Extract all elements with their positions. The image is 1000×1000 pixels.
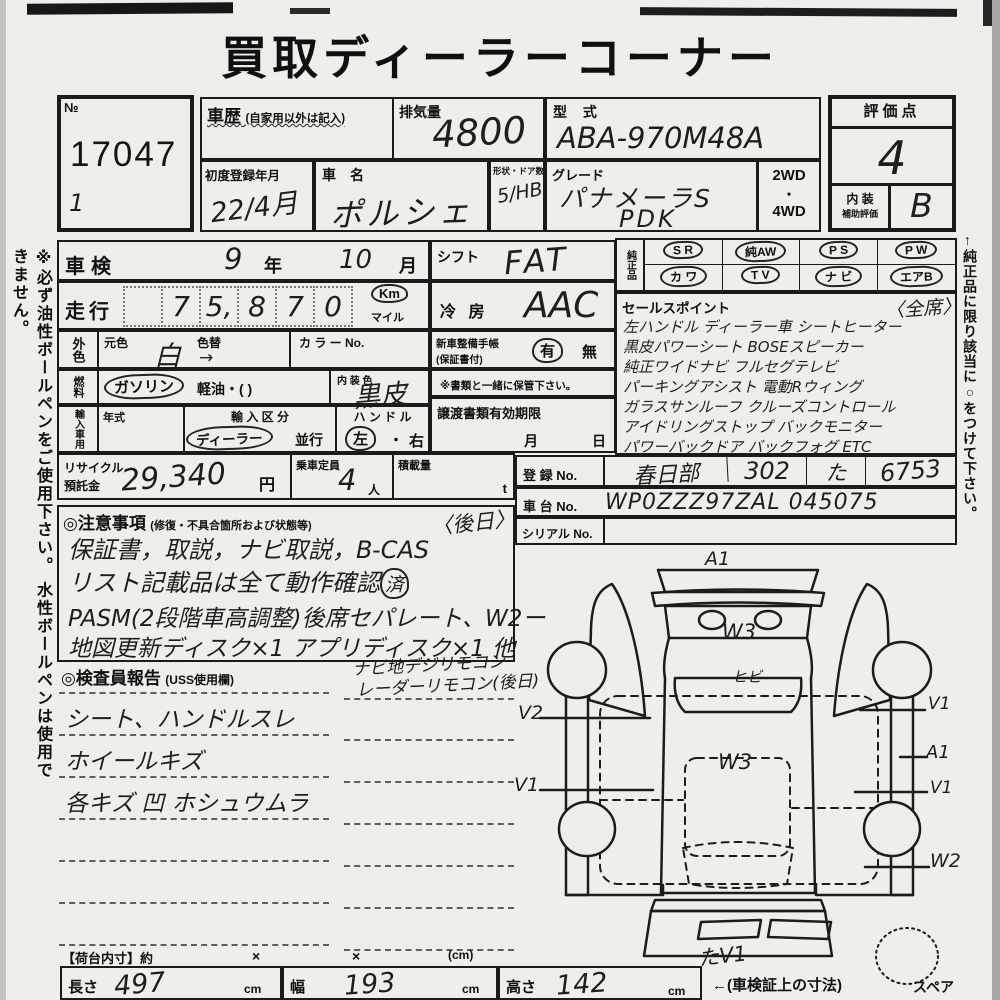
width-label: 幅 <box>290 976 305 997</box>
chassis-number-label: 車 台 No. <box>523 496 577 515</box>
recycle-label-2: 預託金 <box>64 477 100 494</box>
lot-number-box: № 17047 1 <box>57 95 194 232</box>
dimensions-source-note: ←(車検証上の寸法) <box>712 974 842 995</box>
bed-dimensions-label: 【荷台内寸】約 <box>62 948 153 967</box>
handle-left: 左 <box>345 426 376 451</box>
load-unit: t <box>503 481 507 496</box>
mileage-row: 走行 7 5, 8 7 0 Km マイル <box>57 281 430 330</box>
drive-2wd: 2WD <box>759 167 819 184</box>
damage-label-left-v2: V2 <box>518 702 543 724</box>
cautions-line-2-circled-done: 済 <box>380 568 409 599</box>
genuine-part-tv: T V <box>741 265 780 284</box>
body-side-right <box>811 678 815 893</box>
exterior-color-label: 外色 <box>69 332 88 368</box>
capacity-label: 乗車定員 <box>296 457 340 473</box>
ruled-line <box>344 949 514 951</box>
inspection-month-unit: 月 <box>399 252 417 278</box>
scan-artifact <box>640 7 957 17</box>
sales-points-lines: 左ハンドル ディーラー車 シートヒーター 黒皮パワーシート BOSEスピーカー … <box>623 317 957 457</box>
handle-cell: ハ ン ド ル 左 ・ 右 <box>337 407 428 451</box>
sales-point-line: 純正ワイドナビ フルセグテレビ <box>623 357 957 377</box>
rear-reflector-left <box>698 920 761 939</box>
cautions-line-2-text: リスト記載品は全て動作確認済 <box>68 563 409 599</box>
right-margin-note: ←純正品に限り該当に○をつけて下さい。 <box>960 234 980 554</box>
interior-grade-row: 内 装 補助評価 B <box>832 183 952 228</box>
displacement-value: 4800 <box>431 109 527 157</box>
recycle-fee-cell: リサイクル 預託金 29,340 円 <box>59 455 292 498</box>
damage-label-front-a1: A1 <box>705 548 730 570</box>
grade-value-line2: PDK <box>619 205 677 233</box>
exterior-color-row: 外色 元色 白 色替 → カ ラ ー No. <box>57 330 430 369</box>
model-code-box: 型 式 ABA-970M48A <box>545 97 821 160</box>
fuel-diesel: 軽油・( ) <box>197 379 252 399</box>
color-no-cell: カ ラ ー No. <box>291 332 428 367</box>
documents-note-box: ※書類と一緒に保管下さい。 <box>430 369 616 397</box>
grade-score-value: 4 <box>832 131 952 185</box>
scan-artifact <box>290 8 330 14</box>
base-color-label: 元色 <box>104 334 128 351</box>
recycle-value: 29,340 <box>120 456 227 498</box>
grade-score-box: 評価点 4 内 装 補助評価 B <box>828 95 956 232</box>
length-box: 長さ 497 cm <box>60 966 282 1000</box>
load-cell: 積載量 t <box>394 455 513 498</box>
width-value: 193 <box>343 967 397 1000</box>
cautions-line-3: PASM(2段階車高調整)後席セパレート、W2ー <box>62 599 510 633</box>
body-door-label: 形状・ドア数 <box>493 165 544 177</box>
registration-number-row: 登 録 No. 春日部 302 た 6753 <box>515 455 957 487</box>
fuel-gasoline: ガソリン <box>104 373 185 401</box>
displacement-box: 排気量 4800 <box>392 97 545 160</box>
base-color-value: 白 <box>154 334 181 373</box>
first-registration-label: 初度登録年月 <box>205 165 280 184</box>
aircon-value: AAC <box>524 285 598 326</box>
inspector-row-3-text: 各キズ 凹 ホシュウムラ <box>65 784 308 818</box>
genuine-part-cell: 純AW <box>723 240 801 265</box>
inspector-row-3: 各キズ 凹 ホシュウムラ <box>57 778 515 820</box>
registration-digits: 6753 <box>865 453 956 489</box>
inspector-report-area: ◎検査員報告 (USS使用欄) シート、ハンドルスレ ホイールキズ 各キズ 凹 … <box>57 662 515 946</box>
damage-label-right-v1-mid: V1 <box>930 778 952 798</box>
sales-point-line: 左ハンドル ディーラー車 シートヒーター <box>623 317 957 337</box>
genuine-parts-box: 純正品 S R 純AW P S P W カ ワ T V ナ ビ エアB <box>615 238 957 292</box>
sales-point-line: アイドリングストップ バックモニター <box>623 417 957 437</box>
right-rear-wheel <box>864 802 920 856</box>
sales-points-label: セールスポイント <box>622 297 730 317</box>
damage-label-right-w2: W2 <box>930 850 961 872</box>
first-registration-value: 22/4月 <box>208 181 300 230</box>
import-label: 輸入車用 <box>71 407 86 451</box>
damage-label-right-a1: A1 <box>926 742 950 763</box>
page-title: 買取ディーラーコーナー <box>200 22 800 88</box>
spare-tire-outline <box>876 928 938 984</box>
history-label: 車歴 (自家用以外は記入) <box>207 102 345 127</box>
recycle-label-1: リサイクル <box>64 459 123 476</box>
inspector-row-4 <box>57 820 515 862</box>
genuine-part-cell: S R <box>645 240 723 265</box>
service-book-label-2: (保証書付) <box>436 351 483 366</box>
mileage-digit-cells: 7 5, 8 7 0 <box>123 286 353 327</box>
bed-dim-times-1: × <box>252 948 260 964</box>
genuine-part-aw: 純AW <box>735 240 787 263</box>
inspector-row-5 <box>57 862 515 904</box>
import-class-label: 輸 入 区 分 <box>185 408 335 425</box>
registration-number-label: 登 録 No. <box>517 457 605 485</box>
registration-class: 302 <box>728 457 807 485</box>
mileage-digit: 8 <box>237 286 277 327</box>
model-year-label: 年式 <box>103 409 125 425</box>
inspector-row-6 <box>57 904 515 946</box>
interior-grade-label: 内 装 補助評価 <box>832 186 891 228</box>
load-label: 積載量 <box>398 457 431 473</box>
mileage-digit: 5, <box>199 286 239 327</box>
cautions-line-1-text: 保証書，取説，ナビ取説，B-CAS <box>68 530 429 565</box>
rear-window <box>683 842 793 888</box>
rear-bumper-lip <box>651 900 825 911</box>
drive-dot: ・ <box>759 184 819 203</box>
fuel-row: 燃料 ガソリン 軽油・( ) 内 装 色 黒皮 <box>57 369 430 405</box>
height-box: 高さ 142 cm <box>498 966 702 1000</box>
service-book-label-1: 新車整備手帳 <box>436 336 499 351</box>
height-unit: cm <box>668 984 685 998</box>
inspector-report-label: ◎検査員報告 <box>61 669 161 688</box>
transfer-docs-box: 譲渡書類有効期限 月 日 <box>430 397 616 453</box>
serial-number-label: シリアル No. <box>522 525 593 542</box>
aircon-label: 冷 房 <box>440 298 488 322</box>
width-box: 幅 193 cm <box>282 966 498 1000</box>
length-label: 長さ <box>68 976 98 997</box>
damage-label-left-v1: V1 <box>514 774 539 796</box>
inspector-row-2-text: ホイールキズ <box>65 742 203 776</box>
mileage-digit: 7 <box>275 286 315 327</box>
registration-area: 春日部 <box>604 454 728 488</box>
first-registration-box: 初度登録年月 22/4月 <box>200 160 314 232</box>
shift-label: シフト <box>437 247 479 267</box>
grade-box: グレード パナメーラS PDK <box>545 160 758 232</box>
lot-number-value: 17047 <box>70 135 177 175</box>
inspection-label: 車検 <box>65 250 117 279</box>
model-year-cell: 年式 <box>99 407 185 451</box>
height-value: 142 <box>555 967 609 1000</box>
mileage-digit: 0 <box>313 286 353 327</box>
mileage-digit <box>123 286 163 327</box>
inspector-row-2: ホイールキズ <box>57 736 515 778</box>
transfer-docs-label: 譲渡書類有効期限 <box>437 403 541 422</box>
fuel-type-cell: ガソリン 軽油・( ) <box>99 371 331 403</box>
scan-edge <box>992 0 1000 1000</box>
handle-label: ハ ン ド ル <box>337 408 428 425</box>
model-code-label: 型 式 <box>553 102 603 122</box>
sales-point-line: ガラスサンルーフ クルーズコントロール <box>623 397 957 417</box>
height-label: 高さ <box>506 976 536 997</box>
drive-type-box: 2WD ・ 4WD <box>757 160 821 232</box>
left-sill-panel <box>566 690 588 895</box>
right-front-wheel <box>873 642 931 698</box>
left-front-wheel <box>548 642 606 698</box>
transfer-docs-month: 月 <box>524 431 538 451</box>
inspector-report-sub: (USS使用欄) <box>165 673 234 687</box>
registration-kana: た <box>807 457 866 485</box>
left-margin-note: ※必ず油性ボールペンをご使用下さい。 水性ボールペンは使用できません。 <box>6 248 54 793</box>
cautions-line-2: リスト記載品は全て動作確認済 <box>62 565 510 599</box>
damage-label-windshield-crack: ヒビ <box>732 666 762 687</box>
body-side-left <box>661 678 665 893</box>
import-class-dealer: ディーラー <box>186 424 273 451</box>
import-class-cell: 輸 入 区 分 ディーラー 並行 <box>185 407 337 451</box>
recycle-row: リサイクル 預託金 29,340 円 乗車定員 4 人 積載量 t <box>57 453 515 500</box>
width-unit: cm <box>462 982 479 996</box>
model-code-value: ABA-970M48A <box>557 121 764 155</box>
cautions-box: ◎注意事項 (修復・不具合箇所および状態等) 〈後日〉 保証書，取説，ナビ取説，… <box>57 505 515 662</box>
cautions-line-3-text: PASM(2段階車高調整)後席セパレート、W2ー <box>68 599 545 633</box>
shift-value: FAT <box>503 240 570 282</box>
rear-reflector-right <box>768 920 831 939</box>
handle-right: 右 <box>409 430 424 451</box>
genuine-part-cell: ナ ビ <box>800 265 878 290</box>
capacity-unit: 人 <box>368 481 380 498</box>
genuine-part-navi: ナ ビ <box>814 265 862 288</box>
genuine-part-pw: P W <box>895 240 938 259</box>
genuine-part-airbag: エアB <box>890 265 943 288</box>
body-door-value: 5/HB <box>495 178 544 208</box>
cautions-line-1: 保証書，取説，ナビ取説，B-CAS <box>62 531 510 565</box>
scan-artifact <box>27 2 233 14</box>
mileage-digit: 7 <box>161 286 201 327</box>
car-name-value: ポルシェ <box>329 186 475 237</box>
inspector-report-header: ◎検査員報告 (USS使用欄) <box>61 664 234 689</box>
damage-label-roof-w3: W3 <box>718 750 752 774</box>
bed-dim-cm-note: (cm) <box>448 948 473 962</box>
fuel-label: 燃料 <box>70 371 86 403</box>
base-color-cell: 元色 白 色替 → <box>99 332 291 367</box>
service-book-box: 新車整備手帳 (保証書付) 有 無 <box>430 330 616 369</box>
damage-label-hood-w3: W3 <box>722 620 756 644</box>
mileage-unit-km: Km <box>371 284 408 303</box>
inspection-year-unit: 年 <box>264 252 282 278</box>
left-rear-panel-line <box>566 885 663 895</box>
sales-point-line: 黒皮パワーシート BOSEスピーカー <box>623 337 957 357</box>
inspector-row-1: シート、ハンドルスレ <box>57 694 515 736</box>
recycle-unit: 円 <box>259 471 275 495</box>
drive-4wd: 4WD <box>759 203 819 220</box>
import-row: 輸入車用 年式 輸 入 区 分 ディーラー 並行 ハ ン ド ル 左 ・ 右 <box>57 405 430 453</box>
mileage-label: 走行 <box>65 295 113 324</box>
genuine-part-sr: S R <box>663 240 704 259</box>
service-book-no: 無 <box>582 341 597 362</box>
fuel-label-cell: 燃料 <box>59 371 99 403</box>
mileage-unit-mile: マイル <box>371 309 404 325</box>
interior-grade-value: B <box>891 186 952 228</box>
headlight-right <box>755 611 781 629</box>
interior-color-cell: 内 装 色 黒皮 <box>331 371 428 403</box>
hood-side-left <box>664 638 669 678</box>
inspection-year-value: 9 <box>224 242 242 276</box>
genuine-part-cell: エアB <box>878 265 956 290</box>
left-rear-wheel <box>559 802 615 856</box>
exterior-color-label-cell: 外色 <box>59 332 99 367</box>
genuine-parts-grid: S R 純AW P S P W カ ワ T V ナ ビ エアB <box>645 240 955 290</box>
sales-point-line: パワーバックドア バックフォグ ETC <box>623 437 957 457</box>
bed-dim-times-2: × <box>352 948 360 964</box>
genuine-part-cell: P S <box>800 240 878 265</box>
lot-number-label: № <box>64 100 79 115</box>
grade-score-header: 評価点 <box>832 99 952 129</box>
right-rear-panel-line <box>816 885 913 895</box>
genuine-part-cell: P W <box>878 240 956 265</box>
genuine-part-ps: P S <box>818 240 858 259</box>
chassis-number-row: 車 台 No. WP0ZZZ97ZAL 045075 <box>515 487 957 517</box>
color-no-label: カ ラ ー No. <box>299 334 364 351</box>
history-box: 車歴 (自家用以外は記入) <box>200 97 394 160</box>
cautions-line-2-main: リスト記載品は全て動作確認 <box>68 569 380 597</box>
sales-point-line: パーキングアシスト 電動Rウィング <box>623 377 957 397</box>
inspection-row: 車検 9 年 10 月 <box>57 240 430 281</box>
serial-number-divider <box>603 519 605 543</box>
lot-number-sub: 1 <box>69 189 84 217</box>
car-diagram <box>515 548 965 1000</box>
genuine-part-cell: T V <box>723 265 801 290</box>
transfer-docs-day: 日 <box>592 431 606 451</box>
handle-dot: ・ <box>389 430 403 450</box>
shift-box: シフト FAT <box>430 240 616 281</box>
car-name-label: 車 名 <box>322 165 364 185</box>
inspector-row-1-text: シート、ハンドルスレ <box>65 700 295 734</box>
damage-label-right-v1-top: V1 <box>928 694 950 714</box>
capacity-value: 4 <box>338 463 356 497</box>
import-label-cell: 輸入車用 <box>59 407 99 451</box>
genuine-part-kawa: カ ワ <box>659 265 707 288</box>
damage-label-rear: たV1 <box>697 938 749 973</box>
car-name-box: 車 名 ポルシェ <box>314 160 489 232</box>
genuine-part-cell: カ ワ <box>645 265 723 290</box>
auction-sheet: 買取ディーラーコーナー ※必ず油性ボールペンをご使用下さい。 水性ボールペンは使… <box>0 0 1000 1000</box>
import-class-parallel: 並行 <box>295 430 323 450</box>
serial-number-row: シリアル No. <box>515 517 957 545</box>
genuine-parts-label-cell: 純正品 <box>617 240 645 290</box>
ruled-line <box>59 944 329 946</box>
aircon-box: 冷 房 AAC <box>430 281 616 330</box>
service-book-yes: 有 <box>532 338 563 363</box>
base-color-arrow: → <box>199 348 213 368</box>
documents-note: ※書類と一緒に保管下さい。 <box>440 378 576 393</box>
spare-tire-label: スペア <box>913 977 954 997</box>
chassis-number-value: WP0ZZZ97ZAL 045075 <box>605 490 879 515</box>
hood-side-right <box>807 638 812 678</box>
capacity-cell: 乗車定員 4 人 <box>292 455 394 498</box>
sales-points-box: セールスポイント 〈全席〉 左ハンドル ディーラー車 シートヒーター 黒皮パワー… <box>615 292 957 455</box>
length-value: 497 <box>113 967 167 1000</box>
body-door-box: 形状・ドア数 5/HB <box>489 160 545 232</box>
length-unit: cm <box>244 982 261 996</box>
genuine-parts-label: 純正品 <box>623 240 638 290</box>
inspection-month-value: 10 <box>339 245 372 275</box>
